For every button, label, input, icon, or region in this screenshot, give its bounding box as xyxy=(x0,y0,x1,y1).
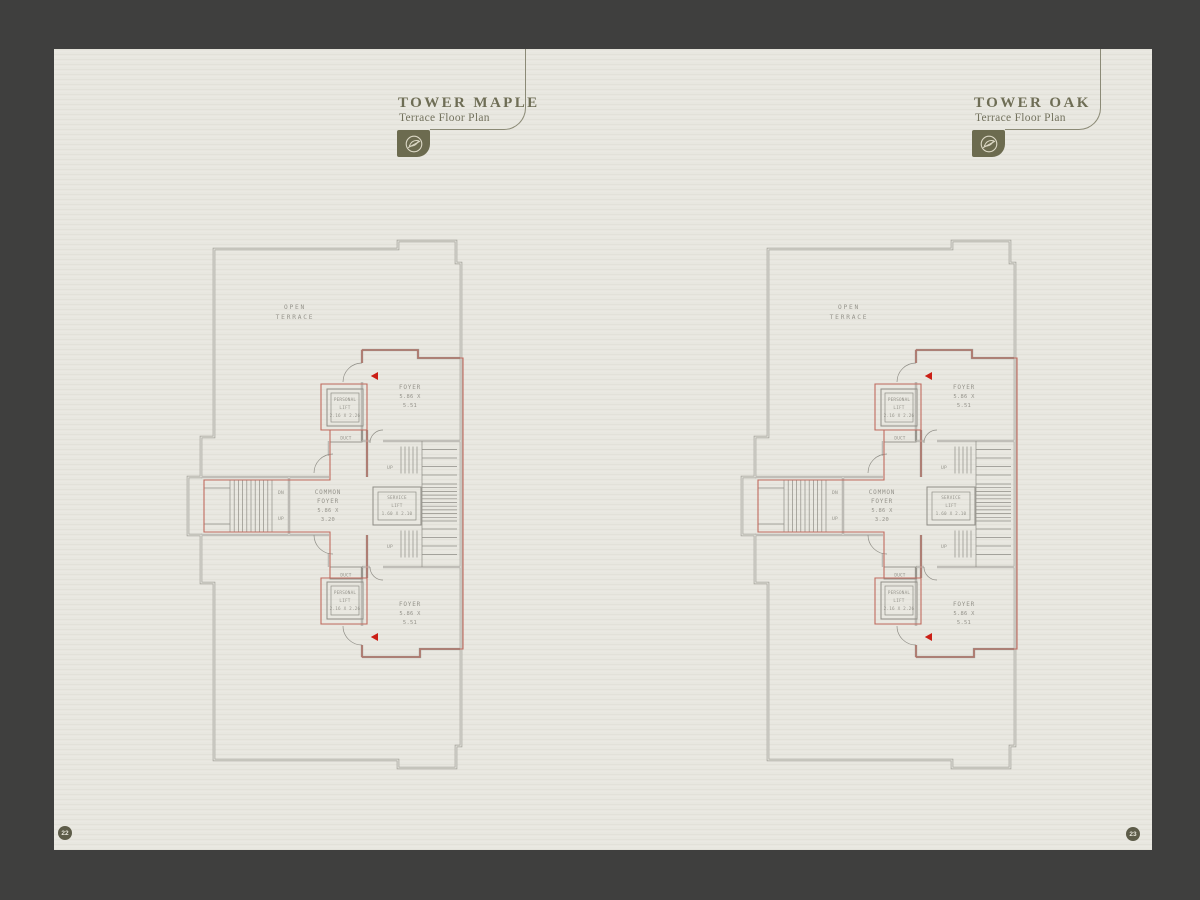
label-personal-lift-bottom: PERSONAL xyxy=(334,590,357,596)
label-open-terrace: TERRACE xyxy=(830,314,869,321)
label-personal-lift-bottom: PERSONAL xyxy=(888,590,911,596)
label-personal-lift-top: PERSONAL xyxy=(334,397,357,403)
label-open-terrace: OPEN xyxy=(284,304,306,311)
page-subtitle: Terrace Floor Plan xyxy=(399,112,490,124)
label-duct-top: DUCT xyxy=(340,436,351,442)
label-up-corridor: UP xyxy=(278,516,284,522)
label-open-terrace: OPEN xyxy=(838,304,860,311)
label-common-foyer-dim: 5.86 X xyxy=(317,508,339,514)
label-personal-lift-top: LIFT xyxy=(893,405,904,411)
label-foyer-top-dim: 5.86 X xyxy=(399,394,421,400)
label-service-lift-dim: 1.60 X 2.10 xyxy=(936,511,967,517)
page-title: TOWER OAK xyxy=(974,95,1091,112)
label-common-foyer: COMMON xyxy=(315,489,341,496)
label-foyer-bottom-dim: 5.51 xyxy=(403,620,417,626)
floor-plan-maple: OPEN TERRACE FOYER 5.86 X 5.51 FOYER 5.8… xyxy=(186,237,476,772)
label-foyer-top-dim: 5.51 xyxy=(403,403,417,409)
label-duct-bottom: DUCT xyxy=(894,573,905,579)
dark-frame: TOWER MAPLE Terrace Floor Plan OPEN TERR… xyxy=(0,0,1200,900)
label-up-stair-top: UP xyxy=(941,465,947,471)
label-service-lift: SERVICE xyxy=(387,495,407,501)
plan-labels: OPEN TERRACE FOYER 5.86 X 5.51 FOYER 5.8… xyxy=(830,304,975,626)
leaf-icon xyxy=(978,133,1000,155)
label-dn-corridor: DN xyxy=(278,490,284,496)
label-up-stair-bottom: UP xyxy=(387,544,393,550)
label-common-foyer-dim: 5.86 X xyxy=(871,508,893,514)
floor-plan-oak: OPEN TERRACE FOYER 5.86 X 5.51 FOYER 5.8… xyxy=(740,237,1030,772)
label-foyer-bottom: FOYER xyxy=(953,601,975,608)
label-foyer-top: FOYER xyxy=(399,384,421,391)
label-open-terrace: TERRACE xyxy=(276,314,315,321)
page-number-left: 22 xyxy=(58,826,72,840)
label-up-stair-top: UP xyxy=(387,465,393,471)
label-personal-lift-top-dim: 2.16 X 2.26 xyxy=(884,413,915,419)
label-foyer-top-dim: 5.51 xyxy=(957,403,971,409)
label-foyer-bottom-dim: 5.86 X xyxy=(399,611,421,617)
label-foyer-bottom-dim: 5.86 X xyxy=(953,611,975,617)
label-personal-lift-top-dim: 2.16 X 2.26 xyxy=(330,413,361,419)
label-service-lift-dim: 1.60 X 2.10 xyxy=(382,511,413,517)
label-service-lift: SERVICE xyxy=(941,495,961,501)
label-personal-lift-top: LIFT xyxy=(339,405,350,411)
label-personal-lift-bottom-dim: 2.16 X 2.26 xyxy=(884,606,915,612)
label-foyer-bottom: FOYER xyxy=(399,601,421,608)
label-duct-bottom: DUCT xyxy=(340,573,351,579)
label-foyer-top-dim: 5.86 X xyxy=(953,394,975,400)
page-subtitle: Terrace Floor Plan xyxy=(975,112,1066,124)
leaf-badge xyxy=(397,130,430,157)
label-up-stair-bottom: UP xyxy=(941,544,947,550)
label-personal-lift-bottom: LIFT xyxy=(339,598,350,604)
page-number-right: 23 xyxy=(1126,827,1140,841)
label-common-foyer: FOYER xyxy=(317,498,339,505)
label-duct-top: DUCT xyxy=(894,436,905,442)
label-service-lift: LIFT xyxy=(945,503,956,509)
leaf-badge xyxy=(972,130,1005,157)
label-common-foyer-dim: 3.20 xyxy=(321,517,335,523)
label-common-foyer: FOYER xyxy=(871,498,893,505)
label-common-foyer-dim: 3.20 xyxy=(875,517,889,523)
label-foyer-bottom-dim: 5.51 xyxy=(957,620,971,626)
label-personal-lift-bottom-dim: 2.16 X 2.26 xyxy=(330,606,361,612)
brochure-spread: TOWER MAPLE Terrace Floor Plan OPEN TERR… xyxy=(54,49,1152,850)
label-personal-lift-bottom: LIFT xyxy=(893,598,904,604)
label-dn-corridor: DN xyxy=(832,490,838,496)
page-title: TOWER MAPLE xyxy=(398,95,540,112)
label-personal-lift-top: PERSONAL xyxy=(888,397,911,403)
label-up-corridor: UP xyxy=(832,516,838,522)
plan-labels: OPEN TERRACE FOYER 5.86 X 5.51 FOYER 5.8… xyxy=(276,304,421,626)
label-service-lift: LIFT xyxy=(391,503,402,509)
label-foyer-top: FOYER xyxy=(953,384,975,391)
leaf-icon xyxy=(403,133,425,155)
label-common-foyer: COMMON xyxy=(869,489,895,496)
